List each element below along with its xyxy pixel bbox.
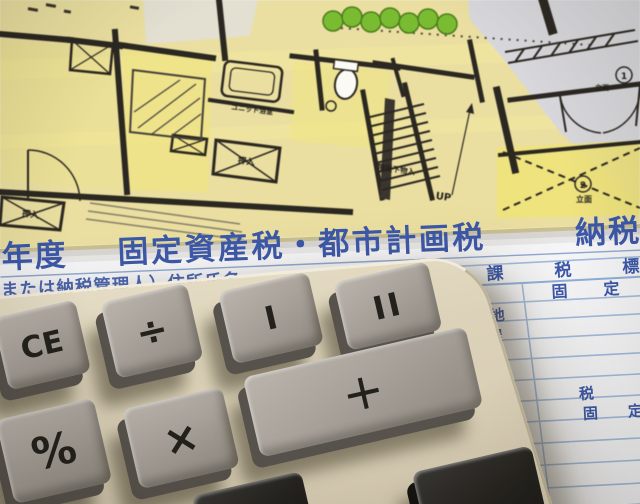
key-label-divide: ÷ [132,306,173,356]
elevation-2-label: 立面 [576,194,592,204]
key-label-bar-1: I [261,298,281,338]
header-right: 納税 [574,213,640,252]
header-year: 年度 [1,237,68,276]
key-label-multiply: × [158,410,203,466]
calculator-key-ce: CE [0,300,91,391]
table-lower-fixed: 固定 [583,400,640,423]
elevation-2-number: 2 [580,181,586,191]
floor-plan-sheet: 押入 押入 階段下物入 ユニット浴室 UP 2 立面 1 立面 [0,0,640,249]
table-lower-tax: 税 [578,384,594,403]
key-label-percent: % [27,421,81,481]
elevation-1-label: 立面 [595,83,609,92]
key-label-bar-2: II [369,284,407,328]
key-label-plus: + [336,359,390,425]
key-label-ce: CE [17,323,66,367]
elevation-1-number: 1 [621,72,627,82]
closet-label: 押入 [237,155,256,168]
up-label: UP [435,191,452,204]
desk-photo: 押入 押入 階段下物入 ユニット浴室 UP 2 立面 1 立面 年度 固定資産税… [0,0,640,504]
